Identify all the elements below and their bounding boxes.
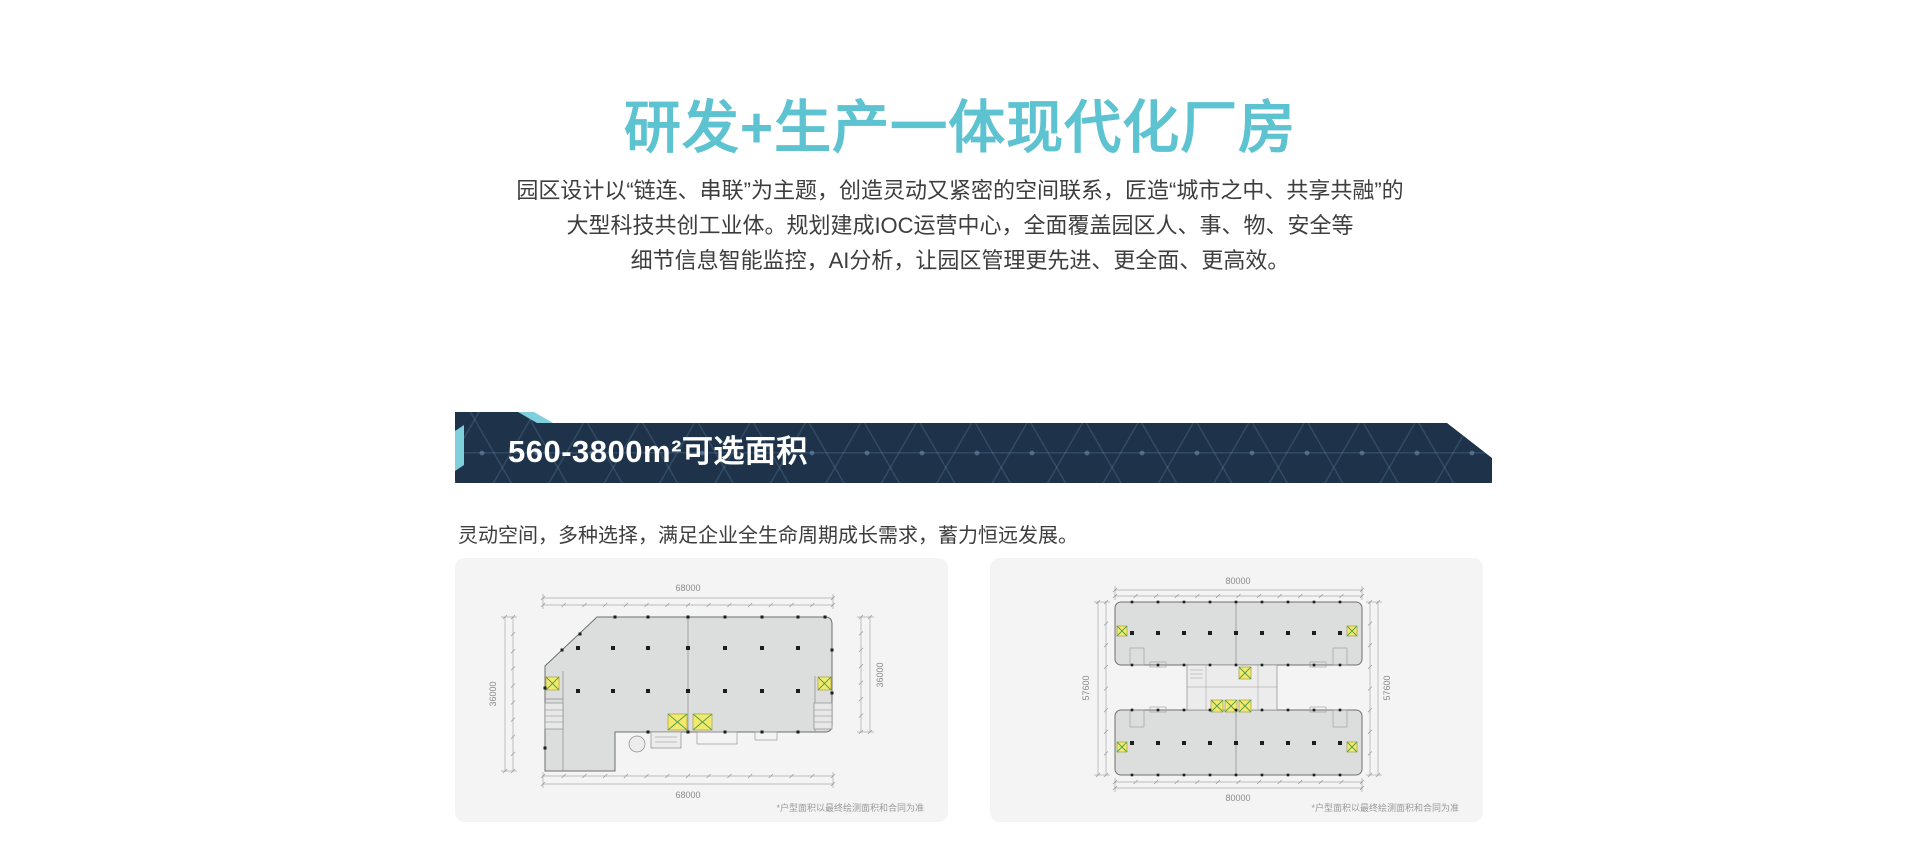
floorplan-drawing-right: 80000 80000 57600 57600 — [990, 558, 1483, 822]
floorplan-drawing-left: 68000 68000 36000 36000 — [455, 558, 948, 822]
floorplan-card-right: 80000 80000 57600 57600 — [990, 558, 1483, 822]
dim-label-bottom: 80000 — [1225, 793, 1250, 803]
dim-label-right: 36000 — [875, 662, 885, 687]
dim-label-right: 57600 — [1382, 675, 1392, 700]
plan-footnote-left: *户型面积以最终绘测面积和合同为准 — [776, 801, 924, 814]
section-subtitle: 灵动空间，多种选择，满足企业全生命周期成长需求，蓄力恒远发展。 — [458, 519, 1078, 548]
floorplan-card-left: 68000 68000 36000 36000 — [455, 558, 948, 822]
dim-label-left: 36000 — [488, 681, 498, 706]
dim-label-left: 57600 — [1081, 675, 1091, 700]
landing-section: 研发+生产一体现代化厂房 园区设计以“链连、串联”为主题，创造灵动又紧密的空间联… — [0, 0, 1920, 847]
building-outline — [545, 617, 832, 771]
plan-footnote-right: *户型面积以最终绘测面积和合同为准 — [1311, 801, 1459, 814]
banner-teal-accent-left — [455, 425, 464, 471]
intro-line-2: 大型科技共创工业体。规划建成IOC运营中心，全面覆盖园区人、事、物、安全等 — [0, 208, 1920, 243]
intro-paragraph: 园区设计以“链连、串联”为主题，创造灵动又紧密的空间联系，匠造“城市之中、共享共… — [0, 173, 1920, 278]
banner-title: 560-3800m²可选面积 — [508, 423, 808, 483]
building-wing-top — [1115, 602, 1362, 665]
lobby-and-canopies — [629, 732, 777, 752]
dim-label-bottom: 68000 — [675, 790, 700, 800]
area-banner: 560-3800m²可选面积 — [455, 412, 1492, 483]
dim-label-top: 80000 — [1225, 576, 1250, 586]
page-title: 研发+生产一体现代化厂房 — [0, 82, 1920, 164]
intro-line-1: 园区设计以“链连、串联”为主题，创造灵动又紧密的空间联系，匠造“城市之中、共享共… — [0, 173, 1920, 208]
dim-label-top: 68000 — [675, 583, 700, 593]
building-wing-bottom — [1115, 710, 1362, 775]
intro-line-3: 细节信息智能监控，AI分析，让园区管理更先进、更全面、更高效。 — [0, 243, 1920, 278]
